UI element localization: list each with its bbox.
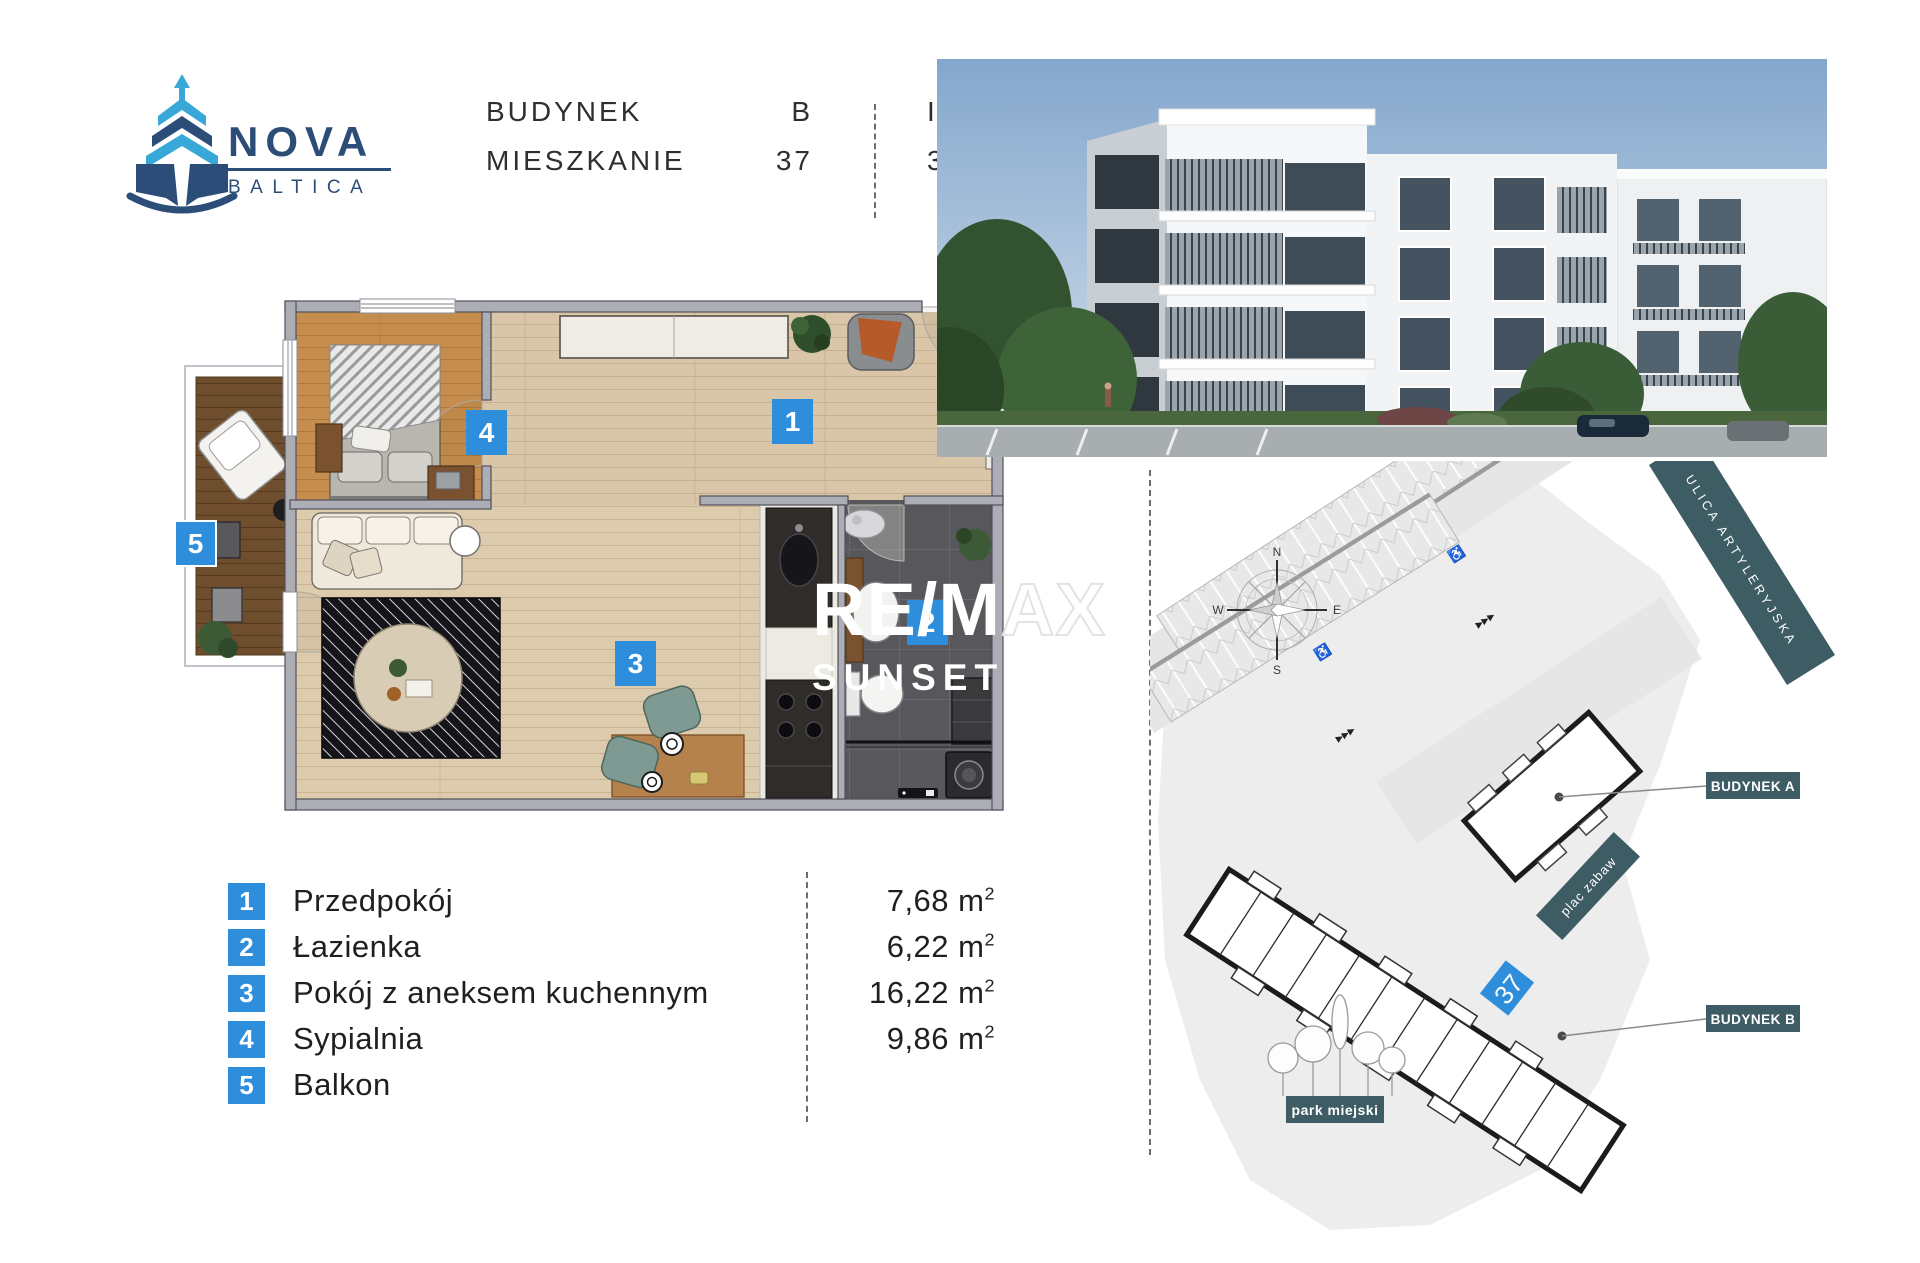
apartment-value: 37 bbox=[776, 145, 813, 177]
floorplan-drawing: 1 2 3 4 5 bbox=[150, 280, 1050, 830]
badge-1: 1 bbox=[785, 406, 801, 437]
legend-row-3: 3 Pokój z aneksem kuchennym 16,22 m2 bbox=[228, 970, 995, 1016]
nightstand bbox=[316, 424, 342, 472]
legend-row-1: 1 Przedpokój 7,68 m2 bbox=[228, 878, 995, 924]
legend-row-5: 5 Balkon bbox=[228, 1062, 995, 1108]
badge-5: 5 bbox=[188, 528, 204, 559]
nova-baltica-ship-logo-icon bbox=[122, 72, 242, 222]
coffee-table bbox=[354, 624, 462, 732]
legend-area-1: 7,68 m2 bbox=[845, 883, 995, 919]
park-label: park miejski bbox=[1292, 1102, 1379, 1118]
compass-n: N bbox=[1273, 545, 1282, 559]
building-value: B bbox=[791, 96, 813, 128]
legend-badge-2: 2 bbox=[228, 929, 265, 966]
site-plan: ♿ ♿ ▶▶▶ ▶▶▶ bbox=[1150, 458, 1920, 1258]
hall-armchair bbox=[848, 314, 914, 370]
kitchen-units bbox=[760, 505, 840, 802]
legend-label-3: Pokój z aneksem kuchennym bbox=[293, 975, 845, 1011]
legend-label-4: Sypialnia bbox=[293, 1021, 845, 1057]
header-divider bbox=[874, 104, 876, 218]
wardrobe bbox=[560, 316, 788, 358]
legend-row-4: 4 Sypialnia 9,86 m2 bbox=[228, 1016, 995, 1062]
legend-label-1: Przedpokój bbox=[293, 883, 845, 919]
bedroom-desk bbox=[428, 466, 474, 502]
legend-badge-5: 5 bbox=[228, 1067, 265, 1104]
person bbox=[1105, 389, 1111, 407]
compass-e: E bbox=[1333, 603, 1341, 617]
compass-s: S bbox=[1273, 663, 1281, 677]
logo-line1: NOVA bbox=[228, 120, 408, 164]
header-unit-info: BUDYNEK B MIESZKANIE 37 bbox=[486, 96, 813, 194]
logo-line2: BALTICA bbox=[228, 177, 408, 199]
legend-badge-3: 3 bbox=[228, 975, 265, 1012]
sofa bbox=[312, 513, 462, 589]
legend-area-3: 16,22 m2 bbox=[845, 975, 995, 1011]
legend-label-2: Łazienka bbox=[293, 929, 845, 965]
badge-2: 2 bbox=[920, 607, 936, 638]
building-a-label: BUDYNEK A bbox=[1711, 779, 1795, 794]
apartment-row: MIESZKANIE 37 bbox=[486, 145, 813, 177]
room-legend: 1 Przedpokój 7,68 m2 2 Łazienka 6,22 m2 … bbox=[228, 878, 995, 1108]
legend-row-2: 2 Łazienka 6,22 m2 bbox=[228, 924, 995, 970]
compass-w: W bbox=[1212, 603, 1224, 617]
bed bbox=[330, 345, 440, 505]
badge-3: 3 bbox=[628, 648, 644, 679]
apartment-label: MIESZKANIE bbox=[486, 145, 686, 177]
legend-area-2: 6,22 m2 bbox=[845, 929, 995, 965]
side-table bbox=[450, 526, 480, 556]
building-row: BUDYNEK B bbox=[486, 96, 813, 128]
flyer-page: NOVA BALTICA BUDYNEK B MIESZKANIE 37 III… bbox=[0, 0, 1920, 1263]
badge-4: 4 bbox=[479, 417, 495, 448]
legend-badge-4: 4 bbox=[228, 1021, 265, 1058]
legend-badge-1: 1 bbox=[228, 883, 265, 920]
building-label: BUDYNEK bbox=[486, 96, 642, 128]
car-silver bbox=[1727, 421, 1789, 441]
building-render-photo bbox=[937, 59, 1827, 457]
legend-divider bbox=[806, 872, 808, 1122]
building-b-label: BUDYNEK B bbox=[1711, 1012, 1796, 1027]
legend-area-4: 9,86 m2 bbox=[845, 1021, 995, 1057]
logo-wordmark: NOVA BALTICA bbox=[228, 120, 408, 199]
street-label: ULICA ARTYLERYJSKA bbox=[1683, 473, 1800, 649]
logo-rule bbox=[228, 168, 391, 171]
legend-label-5: Balkon bbox=[293, 1067, 845, 1103]
